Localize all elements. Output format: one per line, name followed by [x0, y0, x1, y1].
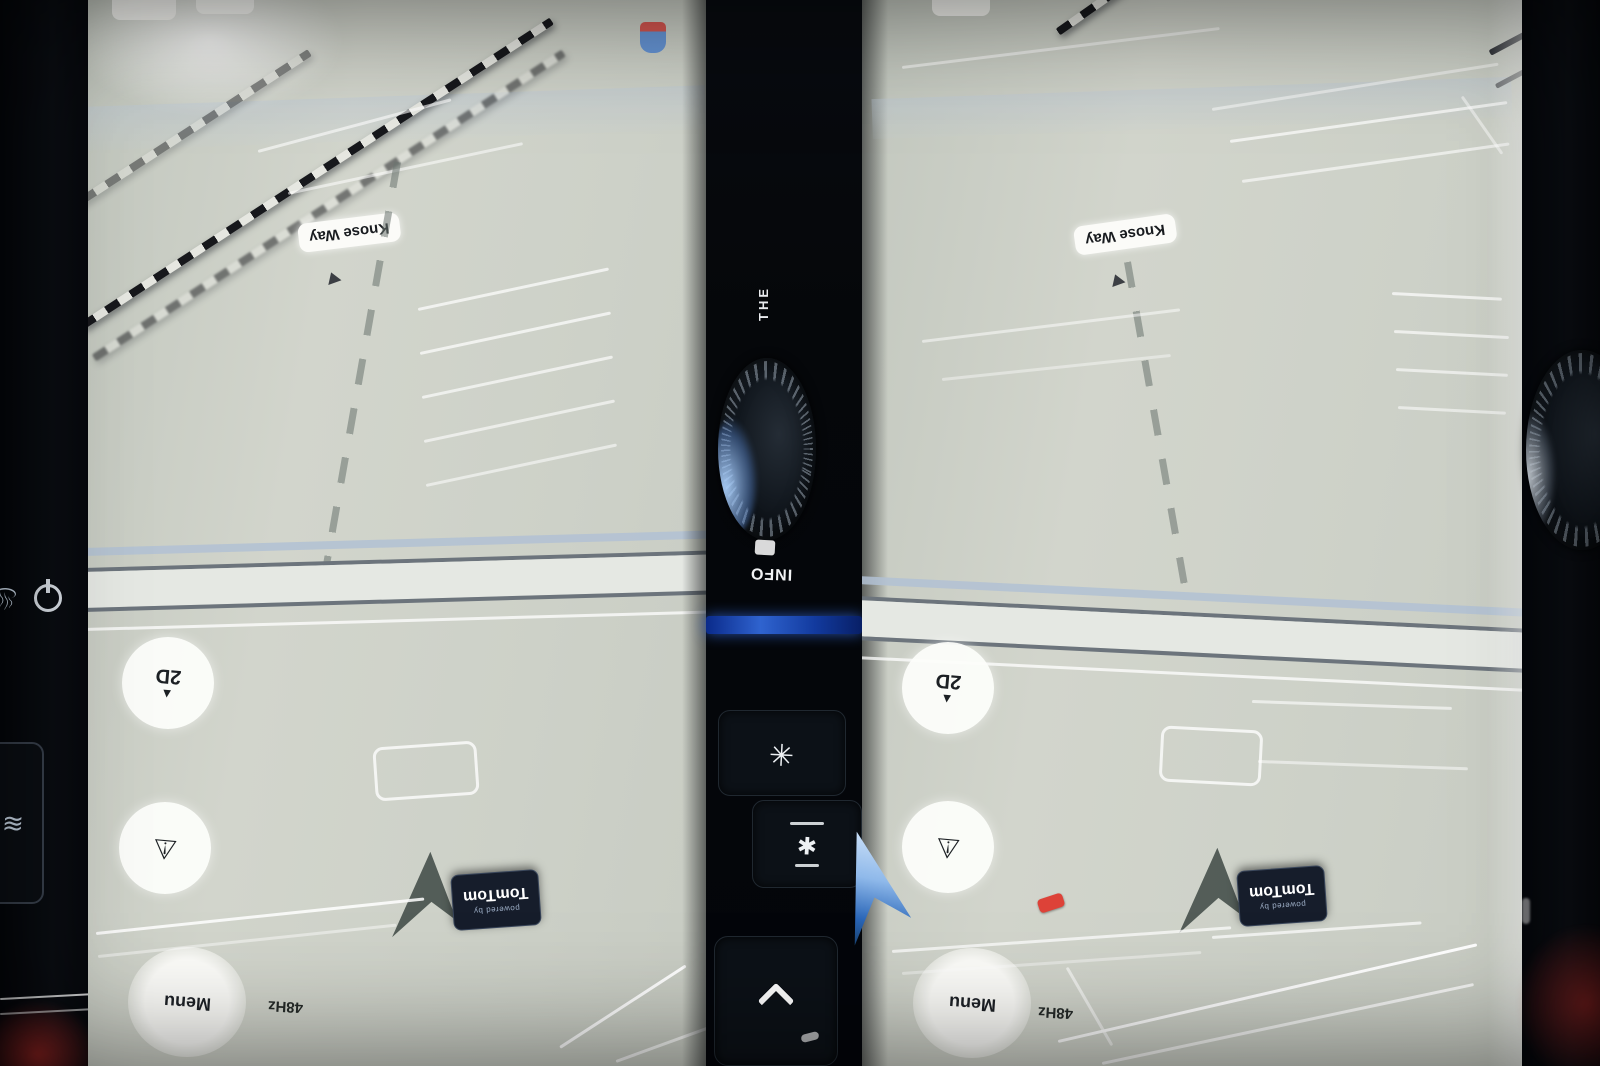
menu-label: Menu — [948, 991, 996, 1015]
console-button-top[interactable]: ✳ — [718, 710, 846, 796]
map-2d-button[interactable]: ▲ 2D — [902, 642, 994, 734]
north-arrow-icon: ▲ — [160, 687, 174, 701]
map-road-line — [1242, 142, 1510, 183]
road-name-text: Knose Way — [1084, 220, 1166, 248]
parking-row-line — [420, 311, 611, 354]
tomtom-logo-text: TomTom — [462, 883, 528, 906]
2d-label: 2D — [155, 664, 182, 686]
parking-row-line — [418, 267, 609, 310]
map-road-line — [942, 354, 1171, 381]
tomtom-logo-text: TomTom — [1248, 879, 1314, 902]
2d-label: 2D — [935, 669, 962, 691]
status-text: 48Hz — [1038, 1003, 1074, 1022]
button-caption-bar — [790, 822, 824, 825]
left-bezel: ♨ ≋ — [0, 0, 88, 1066]
tuning-knob[interactable] — [1526, 350, 1600, 550]
parking-row-line — [426, 443, 617, 486]
parking-row-line — [424, 399, 615, 442]
seat-heater-icon[interactable]: ♨ — [0, 579, 20, 615]
console-vertical-text: THE — [756, 286, 771, 321]
red-route-marker — [1036, 892, 1065, 913]
glare-streak — [96, 898, 425, 935]
glare-streak — [892, 926, 1231, 953]
red-illumination — [1516, 924, 1600, 1066]
hazard-icon: ⚠ — [935, 832, 961, 861]
glare-speck — [1522, 898, 1530, 924]
parking-structure-outline — [1159, 725, 1264, 786]
map-2d-button[interactable]: ▲ 2D — [122, 637, 214, 729]
right-bezel — [1522, 0, 1600, 1066]
hazard-report-button[interactable]: ⚠ — [119, 802, 211, 894]
parking-lot-line — [559, 965, 686, 1049]
road-label-pointer — [325, 270, 342, 285]
map-label-fragment — [932, 0, 990, 16]
road-name-label: Knose Way — [1072, 213, 1177, 256]
parking-lot-line — [1102, 983, 1474, 1065]
screen-edge-shadow — [682, 0, 706, 1066]
info-button[interactable]: INFO — [750, 563, 793, 582]
console-button-assist[interactable]: ✱ — [752, 800, 862, 888]
road-label-pointer — [1109, 272, 1126, 287]
parking-row-line — [422, 355, 613, 398]
screen-edge-glare — [1488, 0, 1522, 1066]
road-name-text: Knose Way — [308, 219, 390, 246]
dashboard-photo: ♨ ≋ Knose Way — [0, 0, 1600, 1066]
button-caption-bar — [795, 864, 819, 867]
powered-by-text: powered by — [1259, 900, 1306, 912]
right-nav-screen[interactable]: Knose Way ▲ 2D ⚠ — [862, 0, 1522, 1066]
map-label-fragment — [112, 0, 176, 20]
asterisk-icon: ✳ — [769, 735, 796, 771]
main-road — [88, 530, 706, 631]
console-button-bottom[interactable] — [714, 936, 838, 1066]
sparkle-icon: ✱ — [796, 829, 818, 859]
ambient-light-strip — [706, 616, 862, 634]
defrost-button[interactable]: ≋ — [0, 742, 44, 904]
menu-button[interactable]: Menu — [128, 947, 246, 1057]
center-console: THE INFO ✳ ✱ — [706, 0, 862, 1066]
hazard-icon: ⚠ — [152, 833, 178, 862]
parking-row-line — [1392, 292, 1502, 301]
reflection-band — [871, 77, 1512, 139]
mute-icon — [755, 539, 776, 555]
north-arrow-icon: ▲ — [940, 692, 954, 706]
defrost-icon: ≋ — [1, 807, 24, 839]
map-label-fragment — [196, 0, 254, 14]
powered-by-text: powered by — [473, 904, 520, 916]
route-shield-icon — [640, 22, 666, 53]
left-nav-screen[interactable]: Knose Way ▲ 2D ⚠ — [88, 0, 706, 1066]
parking-row-line — [1252, 700, 1452, 710]
status-text: 48Hz — [268, 997, 304, 1016]
volume-knob[interactable] — [718, 358, 816, 540]
railway-track — [1056, 0, 1167, 35]
tomtom-badge: powered by TomTom — [450, 869, 542, 931]
menu-label: Menu — [163, 990, 211, 1014]
parking-structure-outline — [372, 740, 480, 801]
power-icon[interactable] — [34, 584, 62, 612]
parking-row-line — [1258, 760, 1468, 770]
tomtom-badge: powered by TomTom — [1236, 865, 1328, 927]
chevron-up-icon — [758, 983, 795, 1020]
hazard-report-button[interactable]: ⚠ — [902, 801, 994, 893]
button-highlight — [800, 1031, 819, 1043]
